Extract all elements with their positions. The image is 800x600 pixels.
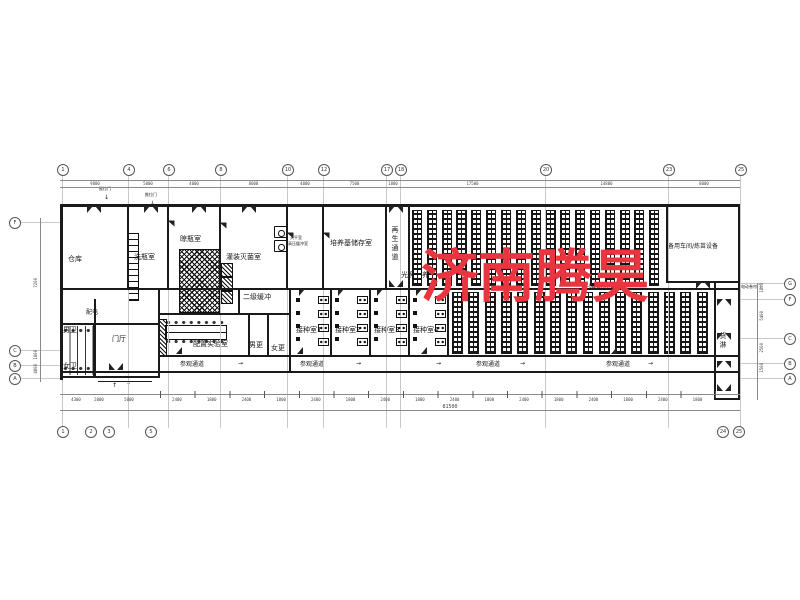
culture-rack [697, 292, 708, 354]
room-label-power: 配电 [86, 310, 98, 316]
double-door-symbol [716, 384, 732, 391]
dimension-line [60, 187, 740, 188]
grid-bubble-top: 6 [163, 164, 175, 176]
clean-bench-icon [396, 324, 407, 332]
corridor-arrow-3: → [436, 361, 441, 367]
dimension-value: 8000 [699, 181, 709, 186]
wall [60, 323, 160, 325]
double-door-symbol [716, 361, 732, 368]
room-label-secondary-buffer: 二级缓冲 [243, 294, 271, 301]
dimension-value: 9800 [90, 181, 100, 186]
door-symbol [337, 289, 345, 296]
stool-icon [413, 311, 417, 315]
wall [219, 204, 221, 290]
grid-line-horizontal [740, 338, 784, 339]
dimension-value: 1800 [693, 397, 703, 402]
lab-stools-bottom [165, 339, 225, 344]
room-label-female-change: 女更 [271, 345, 285, 352]
dimension-value: 2500 [759, 343, 764, 353]
wall [286, 204, 288, 290]
dimension-value: 4800 [33, 364, 38, 374]
prep-lab-bench [165, 325, 227, 340]
stool-icon [413, 324, 417, 328]
dimension-value: 1800 [623, 397, 633, 402]
room-label-pressure-buffer: 高压缓冲室 [288, 242, 308, 246]
stool-icon [335, 298, 339, 302]
dimension-line [40, 218, 41, 382]
clean-bench-icon [318, 310, 329, 318]
wall [408, 204, 410, 290]
wall [408, 288, 410, 356]
corridor-arrow-2: → [356, 361, 361, 367]
room-label-filling-sterilize: 灌装灭菌室 [226, 254, 261, 261]
wall [60, 371, 740, 373]
stool-icon [335, 324, 339, 328]
double-door-symbol [86, 206, 102, 213]
dimension-value: 1800 [276, 397, 286, 402]
toilet-fixtures-top [62, 328, 93, 334]
grid-bubble-bottom: 5 [145, 426, 157, 438]
door-symbol [168, 220, 175, 228]
room-label-male-change: 男更 [249, 342, 263, 349]
dimension-line [60, 180, 740, 181]
grid-bubble-left: C [9, 345, 21, 357]
dimension-value: 4300 [71, 397, 81, 402]
dimension-value: 17500 [466, 181, 478, 186]
culture-rack [680, 292, 691, 354]
wall [248, 313, 250, 357]
wall [322, 204, 324, 290]
dimension-value: 1800 [554, 397, 564, 402]
stool-icon [374, 324, 378, 328]
grid-bubble-bottom: 25 [733, 426, 745, 438]
double-door-symbol [108, 363, 124, 370]
dimension-value: 1800 [415, 397, 425, 402]
stool-icon [335, 337, 339, 341]
grid-bubble-right: G [784, 278, 796, 290]
wall [330, 288, 332, 356]
dimension-value: 5000 [124, 397, 134, 402]
door-symbol [376, 289, 384, 296]
wall [60, 204, 63, 380]
room-label-medium-storage: 培养基储存室 [330, 240, 372, 247]
grid-bubble-top: 10 [282, 164, 294, 176]
drying-room-hatched-floor [179, 249, 220, 313]
grid-line-horizontal [740, 378, 784, 379]
dimension-line [757, 283, 758, 400]
door-symbol [220, 222, 227, 230]
dimension-value: 2400 [311, 397, 321, 402]
clean-bench-icon [435, 338, 446, 346]
dimension-value: 1800 [759, 283, 764, 293]
wall [666, 204, 668, 282]
wall [167, 204, 169, 290]
entry-arrow-up-1: ↑ [112, 383, 117, 389]
lab-stools-top [165, 320, 225, 325]
door-symbol [296, 347, 304, 354]
wall [714, 398, 740, 400]
door-symbol [610, 347, 618, 354]
double-door-symbol [388, 280, 404, 287]
clean-bench-icon [435, 310, 446, 318]
wall [158, 313, 290, 315]
grid-bubble-left: F [9, 217, 21, 229]
wall [158, 288, 160, 378]
dimension-value: 2400 [450, 397, 460, 402]
corridor-arrow-5: → [648, 361, 653, 367]
door-arrow-down-1: ↓ [104, 195, 109, 201]
stool-icon [335, 311, 339, 315]
room-label-spare-workshop: 备用车间/炼苗设备 [668, 244, 718, 250]
grid-bubble-left: B [9, 360, 21, 372]
stool-icon [296, 311, 300, 315]
clean-bench-icon [396, 338, 407, 346]
stool-icon [374, 311, 378, 315]
clean-bench-icon [357, 296, 368, 304]
grid-line-horizontal [740, 299, 784, 300]
grid-bubble-top: 1 [57, 164, 69, 176]
door-symbol [175, 347, 183, 354]
grid-bubble-top: 20 [540, 164, 552, 176]
grid-bubble-top: 17 [381, 164, 393, 176]
dimension-value: 7500 [350, 181, 360, 186]
grid-bubble-bottom: 24 [717, 426, 729, 438]
grid-bubble-top: 4 [123, 164, 135, 176]
double-door-symbol [143, 206, 159, 213]
grid-bubble-top: 12 [318, 164, 330, 176]
room-label-regen-corridor: 再生通道 [391, 226, 398, 262]
wall [98, 377, 152, 378]
double-door-symbol [241, 206, 257, 213]
culture-rack [649, 210, 659, 286]
corridor-arrow-4: → [520, 361, 525, 367]
stool-icon [413, 298, 417, 302]
clean-bench-icon [396, 296, 407, 304]
wall [238, 288, 240, 314]
stool-icon [374, 337, 378, 341]
clean-bench-icon [357, 310, 368, 318]
dimension-value: 1800 [346, 397, 356, 402]
dimension-total: 81500 [442, 404, 457, 410]
grid-bubble-right: C [784, 333, 796, 345]
dimension-line [60, 410, 740, 411]
clean-bench-icon [318, 296, 329, 304]
wall [738, 204, 740, 400]
door-symbol [298, 289, 306, 296]
grid-bubble-top: 8 [215, 164, 227, 176]
sterilizer-machine-1 [221, 263, 233, 277]
stool-icon [374, 298, 378, 302]
grid-bubble-left: A [9, 373, 21, 385]
corridor-label-4: 参观通道 [606, 362, 630, 368]
dimension-value: 1800 [388, 181, 398, 186]
dimension-value: 2400 [519, 397, 529, 402]
double-door-symbol [695, 282, 711, 289]
dimension-value: 1800 [484, 397, 494, 402]
grid-bubble-right: B [784, 358, 796, 370]
culture-rack [664, 292, 675, 354]
sliding-door-label-2: 推拉门 [145, 193, 157, 197]
dimension-value: 4000 [189, 181, 199, 186]
dimension-value: 14800 [600, 181, 612, 186]
dimension-value: 2400 [380, 397, 390, 402]
dimension-value: 5400 [759, 311, 764, 321]
wall [267, 313, 269, 357]
grid-bubble-top: 18 [395, 164, 407, 176]
grid-bubble-right: A [784, 373, 796, 385]
dimension-value: 5000 [143, 181, 153, 186]
clean-bench-icon [435, 324, 446, 332]
sterilizer-machine-3 [221, 291, 233, 304]
stool-icon [413, 337, 417, 341]
corridor-arrow-1: → [238, 361, 243, 367]
dimension-value: 2400 [242, 397, 252, 402]
room-label-warehouse: 仓库 [68, 256, 82, 263]
grid-bubble-bottom: 3 [103, 426, 115, 438]
floor-plan-canvas: 济南腾昊 仓库 洗瓶室 晾瓶室 灌装灭菌室 天平室 高压缓冲室 培养基储存室 再… [0, 0, 800, 600]
clean-bench-icon [357, 324, 368, 332]
dimension-value: 2400 [589, 397, 599, 402]
red-watermark: 济南腾昊 [421, 249, 649, 306]
culture-rack [648, 292, 659, 354]
dimension-value: 2400 [172, 397, 182, 402]
room-label-bottle-dry: 晾瓶室 [180, 236, 201, 243]
grid-bubble-bottom: 1 [57, 426, 69, 438]
double-door-symbol [388, 206, 404, 213]
bottle-wash-shelf [128, 233, 139, 301]
clean-bench-icon [396, 310, 407, 318]
double-door-symbol [716, 333, 732, 340]
dimension-value: 4000 [300, 181, 310, 186]
room-label-lobby: 门厅 [112, 336, 126, 343]
wall [369, 288, 371, 356]
dimension-value: 7200 [33, 278, 38, 288]
stool-icon [296, 337, 300, 341]
dimension-value: 1800 [207, 397, 217, 402]
wall [158, 355, 740, 357]
wall [385, 204, 387, 290]
wall [127, 204, 129, 290]
grid-bubble-top: 23 [663, 164, 675, 176]
door-symbol [323, 232, 330, 240]
corridor-label-1: 参观通道 [180, 362, 204, 368]
dimension-value: 1800 [33, 350, 38, 360]
wall [289, 288, 291, 372]
rolling-door-label: 电动卷帘门 [741, 285, 761, 289]
dimension-value: 2000 [94, 397, 104, 402]
door-symbol [287, 232, 294, 240]
clean-bench-icon [357, 338, 368, 346]
stool-icon [296, 298, 300, 302]
dimension-value: 1500 [759, 363, 764, 373]
dimension-value: 8000 [249, 181, 259, 186]
door-symbol [420, 347, 428, 354]
grid-bubble-right: F [784, 294, 796, 306]
grid-line-vertical [740, 176, 741, 428]
clean-bench-icon [318, 324, 329, 332]
corridor-label-3: 参观通道 [476, 362, 500, 368]
corridor-label-2: 参观通道 [300, 362, 324, 368]
stool-icon [296, 324, 300, 328]
wall [93, 323, 95, 377]
wall [98, 381, 152, 382]
clean-bench-icon [318, 338, 329, 346]
grid-bubble-top: 25 [735, 164, 747, 176]
double-door-symbol [716, 299, 732, 306]
dimension-value: 2400 [658, 397, 668, 402]
double-door-symbol [191, 206, 207, 213]
grid-bubble-bottom: 2 [85, 426, 97, 438]
